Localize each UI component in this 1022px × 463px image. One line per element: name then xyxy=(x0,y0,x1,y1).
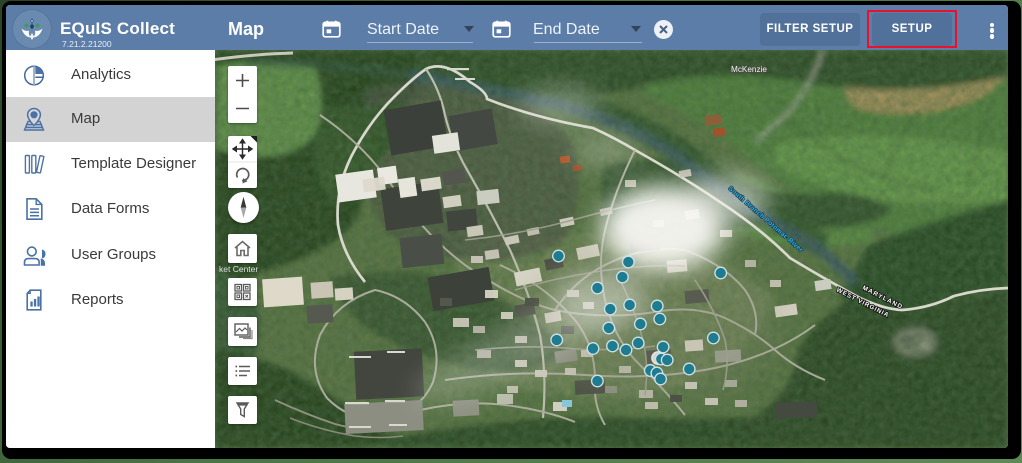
svg-text:ket Center: ket Center xyxy=(219,264,258,274)
svg-text:McKenzie: McKenzie xyxy=(731,65,767,74)
